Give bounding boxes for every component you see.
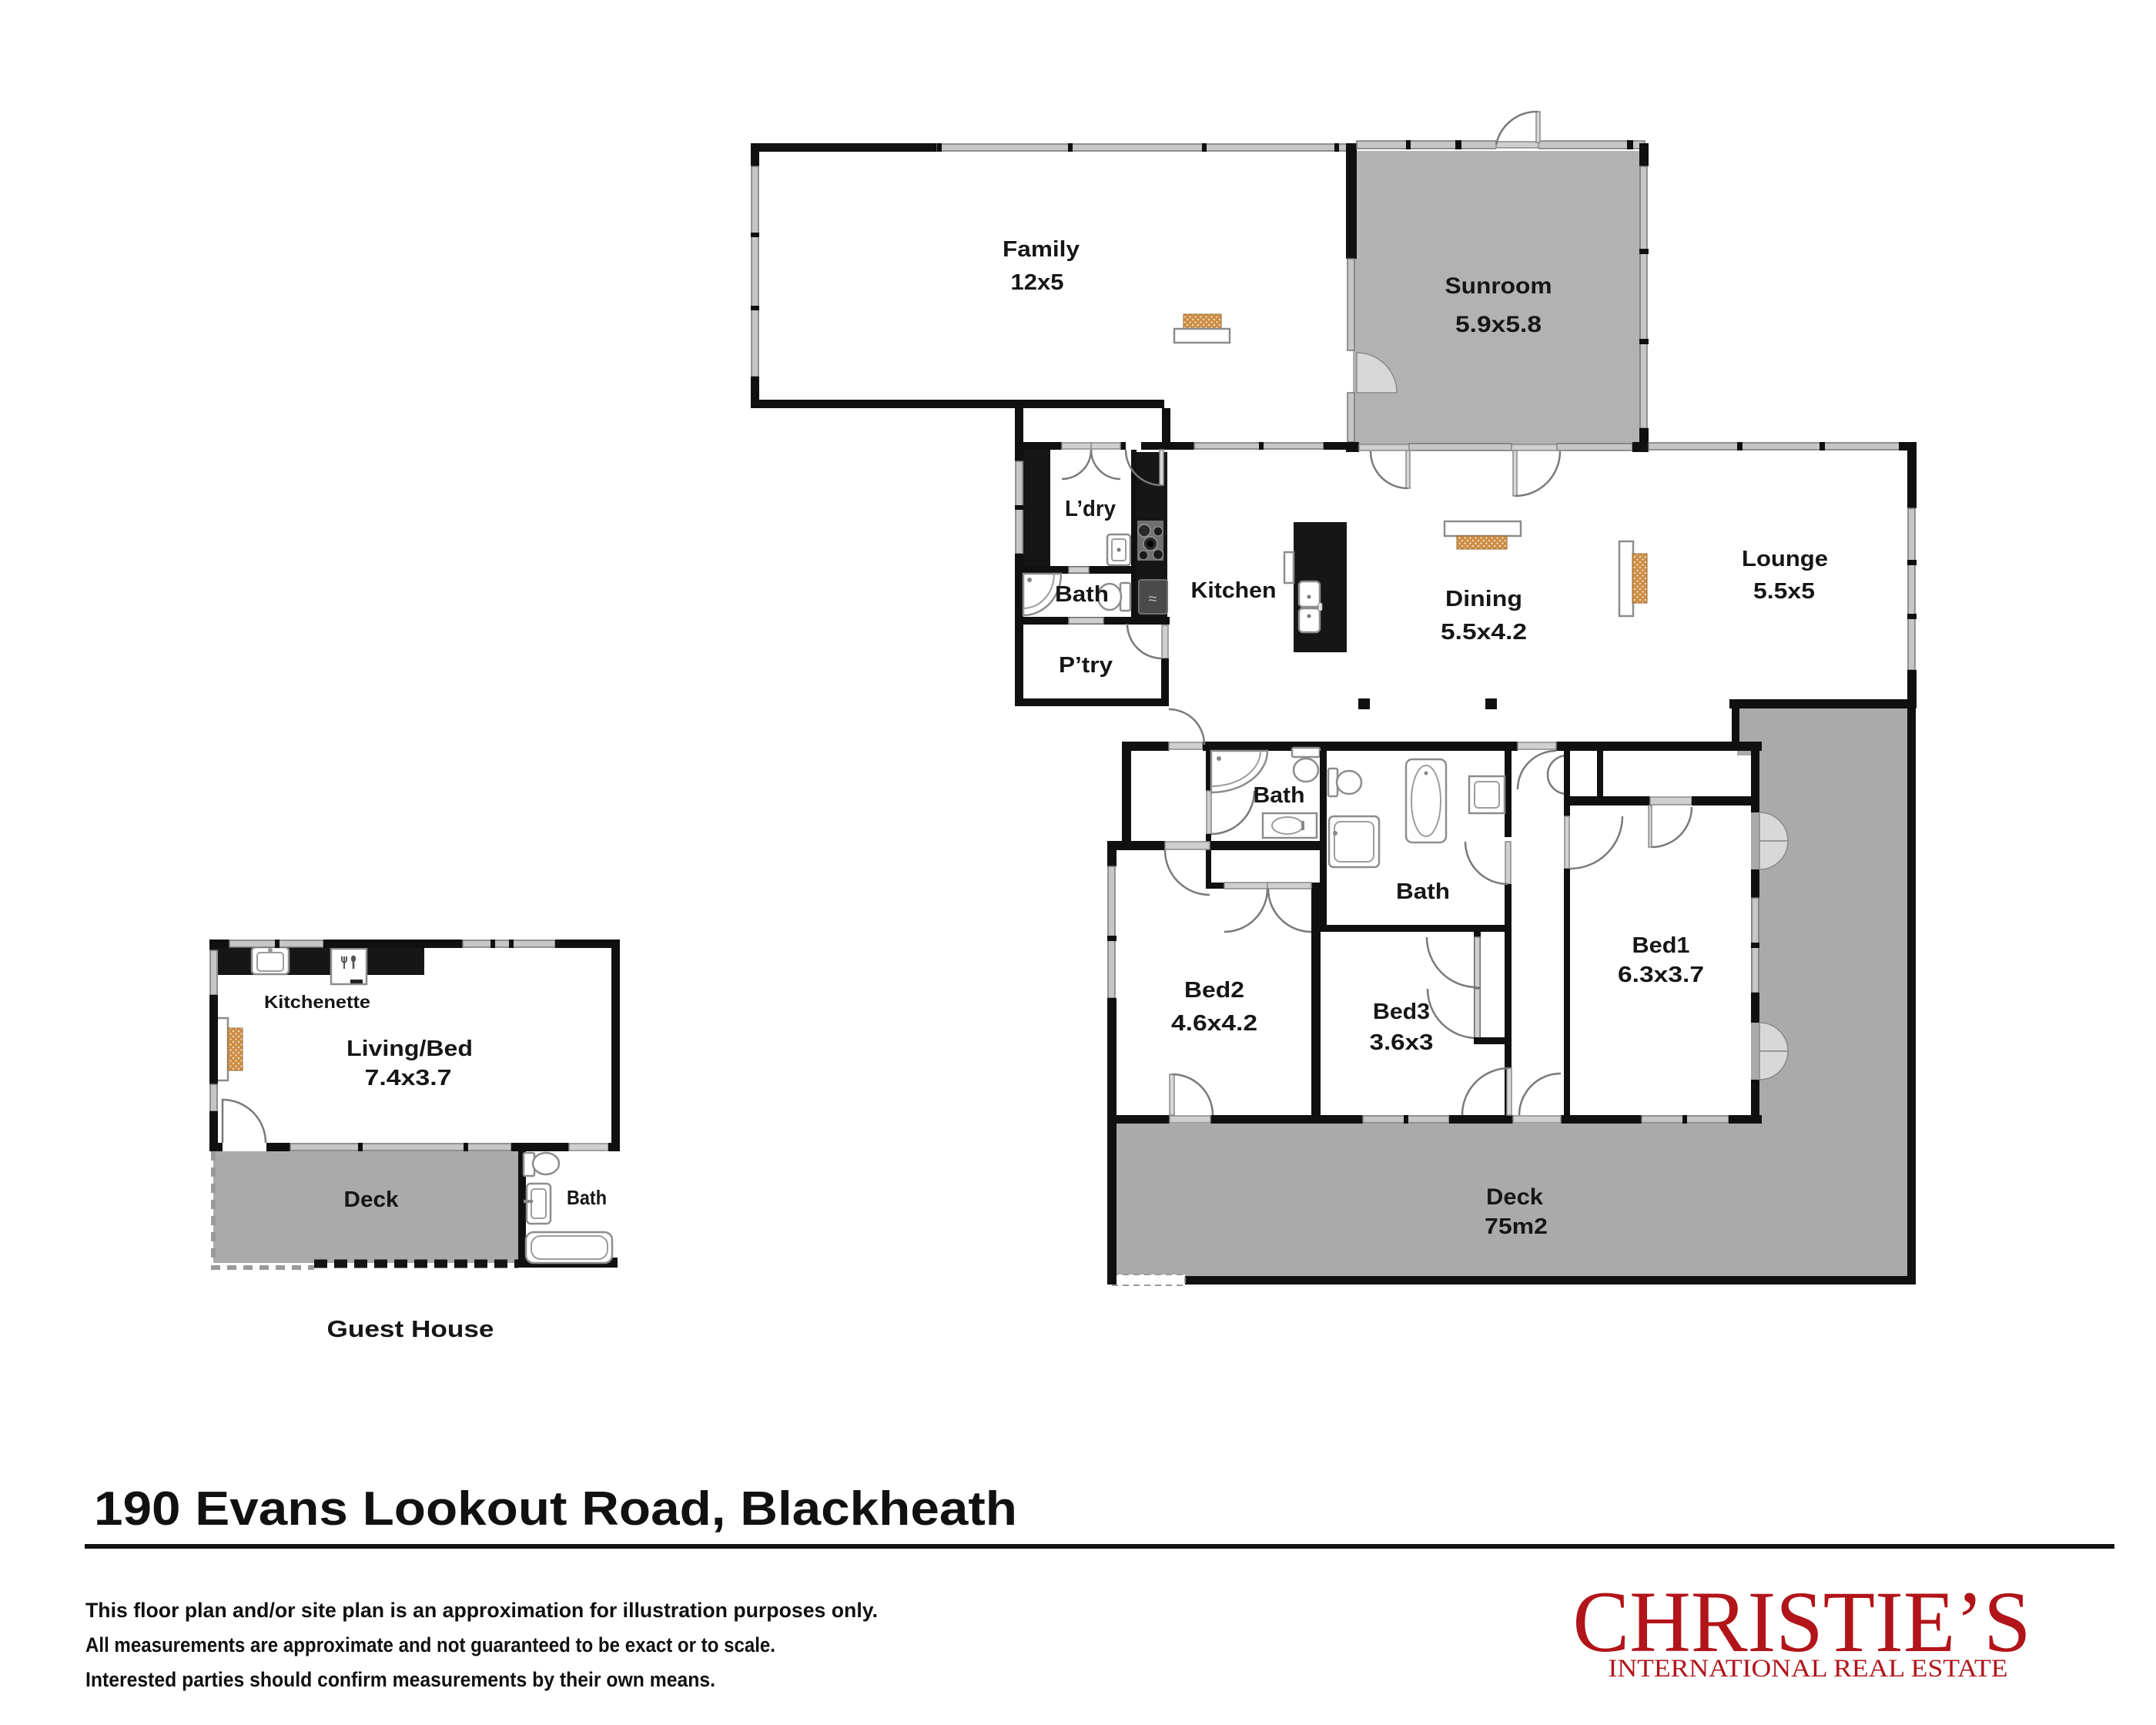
- svg-text:12x5: 12x5: [1011, 270, 1064, 295]
- svg-text:INTERNATIONAL REAL ESTATE: INTERNATIONAL REAL ESTATE: [1609, 1655, 2008, 1683]
- svg-text:Bath: Bath: [1254, 783, 1305, 808]
- svg-text:P’try: P’try: [1059, 653, 1113, 678]
- svg-text:Kitchen: Kitchen: [1191, 578, 1277, 603]
- svg-text:All measurements are approxima: All measurements are approximate and not…: [85, 1633, 775, 1656]
- svg-text:Deck: Deck: [344, 1187, 400, 1212]
- svg-text:3.6x3: 3.6x3: [1370, 1030, 1434, 1055]
- svg-text:Lounge: Lounge: [1742, 547, 1828, 571]
- svg-text:Interested parties should conf: Interested parties should confirm measur…: [85, 1668, 715, 1691]
- svg-text:Living/Bed: Living/Bed: [346, 1037, 473, 1061]
- svg-text:190 Evans Lookout Road, Blackh: 190 Evans Lookout Road, Blackheath: [94, 1482, 1017, 1536]
- svg-text:75m2: 75m2: [1485, 1214, 1548, 1239]
- svg-text:≈: ≈: [1149, 591, 1157, 608]
- svg-text:Family: Family: [1003, 237, 1080, 262]
- svg-text:Bath: Bath: [1396, 879, 1450, 904]
- svg-text:5.9x5.8: 5.9x5.8: [1455, 312, 1542, 337]
- svg-text:7.4x3.7: 7.4x3.7: [365, 1066, 452, 1090]
- svg-text:Guest House: Guest House: [327, 1315, 494, 1342]
- svg-text:This floor plan and/or site pl: This floor plan and/or site plan is an a…: [85, 1599, 878, 1622]
- svg-text:Bed1: Bed1: [1632, 933, 1690, 958]
- svg-text:Deck: Deck: [1486, 1184, 1543, 1210]
- svg-text:5.5x5: 5.5x5: [1753, 579, 1815, 604]
- svg-text:Bed2: Bed2: [1184, 978, 1244, 1003]
- svg-text:Bed3: Bed3: [1373, 1000, 1430, 1024]
- svg-text:Kitchenette: Kitchenette: [264, 992, 370, 1012]
- svg-text:6.3x3.7: 6.3x3.7: [1618, 963, 1704, 987]
- svg-text:Bath: Bath: [1055, 582, 1109, 607]
- svg-text:Bath: Bath: [567, 1186, 607, 1209]
- svg-text:Sunroom: Sunroom: [1445, 273, 1552, 299]
- svg-text:5.5x4.2: 5.5x4.2: [1441, 620, 1527, 645]
- svg-text:Dining: Dining: [1445, 587, 1522, 611]
- svg-text:4.6x4.2: 4.6x4.2: [1171, 1011, 1257, 1036]
- svg-text:L’dry: L’dry: [1065, 497, 1116, 521]
